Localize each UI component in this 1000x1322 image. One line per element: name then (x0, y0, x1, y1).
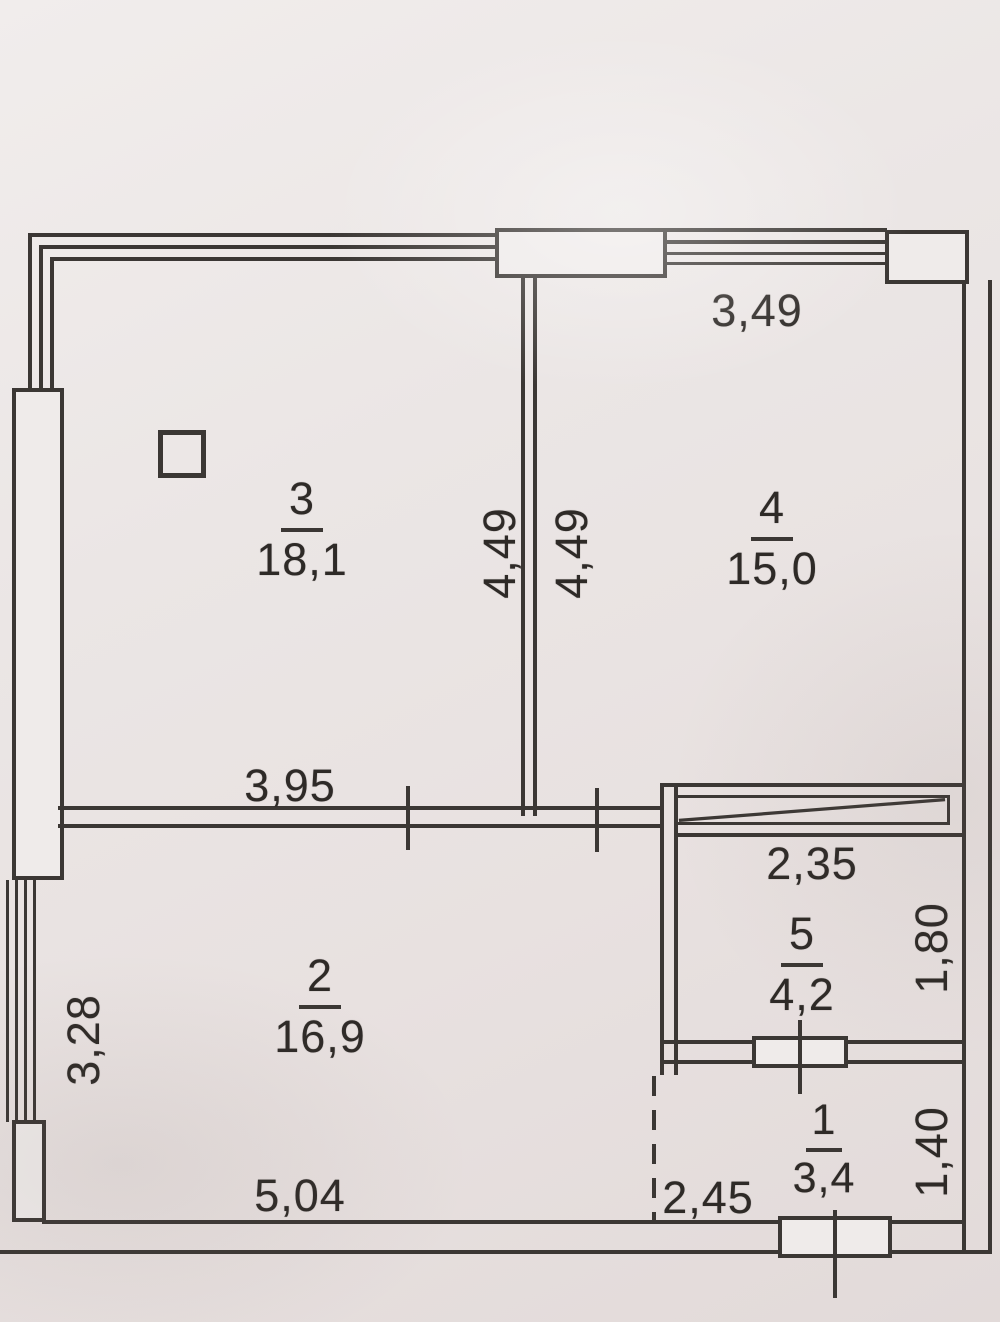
dimension-room2-bottom-width: 5,04 (200, 1170, 400, 1222)
wall-room5-left (660, 783, 678, 1075)
window-left-line-1 (6, 880, 9, 1122)
window-top-right-line-3 (665, 252, 887, 255)
room-5-area: 4,2 (769, 969, 835, 1021)
column-symbol (158, 430, 206, 478)
room-2-number: 2 (307, 950, 333, 1002)
dimension-wall34-room3-side: 4,49 (474, 468, 526, 638)
room-1-area: 3,4 (793, 1154, 856, 1203)
room-1-number: 1 (812, 1096, 837, 1145)
dimension-tick-entry (833, 1210, 837, 1298)
wall-pier-bottom-left (12, 1120, 46, 1222)
room-5-label: 5 4,2 (722, 908, 882, 1021)
room-4-number: 4 (759, 482, 785, 534)
room-4-area: 15,0 (726, 543, 818, 595)
dimension-room3-bottom-width: 3,95 (190, 760, 390, 812)
dimension-room4-top-width: 3,49 (657, 285, 857, 337)
room-3-label: 3 18,1 (222, 473, 382, 586)
window-top-left-line-3 (50, 257, 500, 390)
dimension-room5-width: 2,35 (712, 838, 912, 890)
room-2-area: 16,9 (274, 1011, 366, 1063)
floor-plan: 3,49 4,49 4,49 3,95 2,35 1,80 3,28 5,04 … (0, 0, 1000, 1322)
dimension-room1-height: 1,40 (906, 1067, 958, 1237)
fraction-bar (781, 963, 823, 967)
fraction-bar (806, 1148, 842, 1152)
room-2-label: 2 16,9 (240, 950, 400, 1063)
window-left-line-3 (24, 880, 27, 1122)
window-top-right-line-2 (665, 240, 887, 244)
room-4-label: 4 15,0 (692, 482, 852, 595)
dimension-room5-height: 1,80 (906, 863, 958, 1033)
window-left-line-4 (33, 880, 36, 1122)
duct-diagonal-line (677, 798, 947, 822)
window-top-right-line-4 (665, 262, 887, 265)
wall-room5-top-outer (660, 783, 962, 787)
window-top-right-line-1 (665, 228, 887, 232)
dimension-room2-left-height: 3,28 (58, 955, 110, 1125)
fraction-bar (299, 1005, 341, 1009)
dimension-wall34-room4-side: 4,49 (546, 468, 598, 638)
wall-room5-top-inner (674, 833, 962, 837)
wall-pier-top-right (885, 230, 969, 284)
dimension-tick-mid-2 (595, 788, 599, 852)
room-3-area: 18,1 (256, 534, 348, 586)
room-5-number: 5 (789, 908, 815, 960)
room-1-label: 1 3,4 (744, 1096, 904, 1203)
dimension-tick-mid-1 (406, 786, 410, 850)
duct-band-room5 (674, 795, 950, 825)
wall-right-outer (962, 280, 992, 1254)
fraction-bar (281, 528, 323, 532)
window-left-line-2 (15, 880, 18, 1122)
room-3-number: 3 (289, 473, 315, 525)
wall-pier-top (495, 228, 667, 278)
wall-pier-left (12, 388, 64, 880)
fraction-bar (751, 537, 793, 541)
dimension-tick-room5 (798, 1020, 802, 1094)
